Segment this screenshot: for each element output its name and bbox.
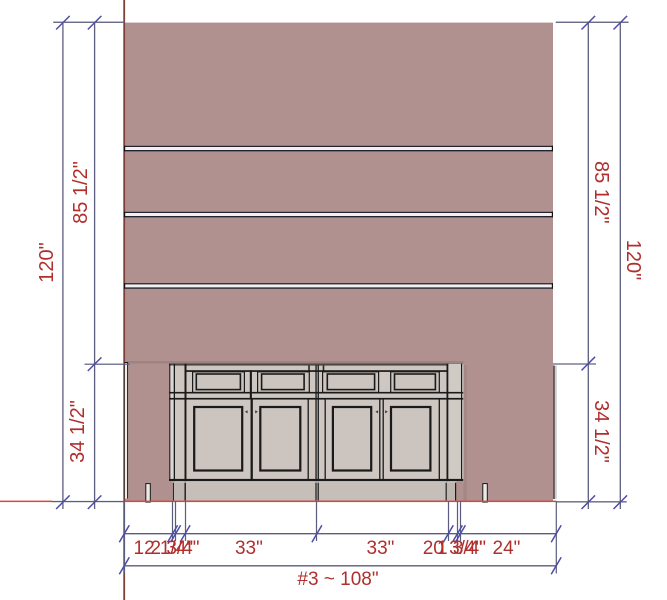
- svg-text:120": 120": [622, 240, 644, 280]
- svg-text:34 1/2": 34 1/2": [590, 400, 612, 463]
- svg-text:85 1/2": 85 1/2": [590, 161, 612, 224]
- svg-text:120": 120": [36, 242, 58, 282]
- svg-text:33": 33": [235, 538, 263, 559]
- svg-text:33": 33": [367, 538, 395, 559]
- svg-text:#3 ~ 108": #3 ~ 108": [297, 569, 378, 590]
- svg-text:34 1/2": 34 1/2": [67, 400, 89, 463]
- svg-text:85 1/2": 85 1/2": [70, 161, 92, 224]
- svg-text:24": 24": [493, 538, 521, 559]
- svg-text:1 3/4": 1 3/4": [437, 538, 486, 559]
- svg-text:2 3/4": 2 3/4": [150, 538, 199, 559]
